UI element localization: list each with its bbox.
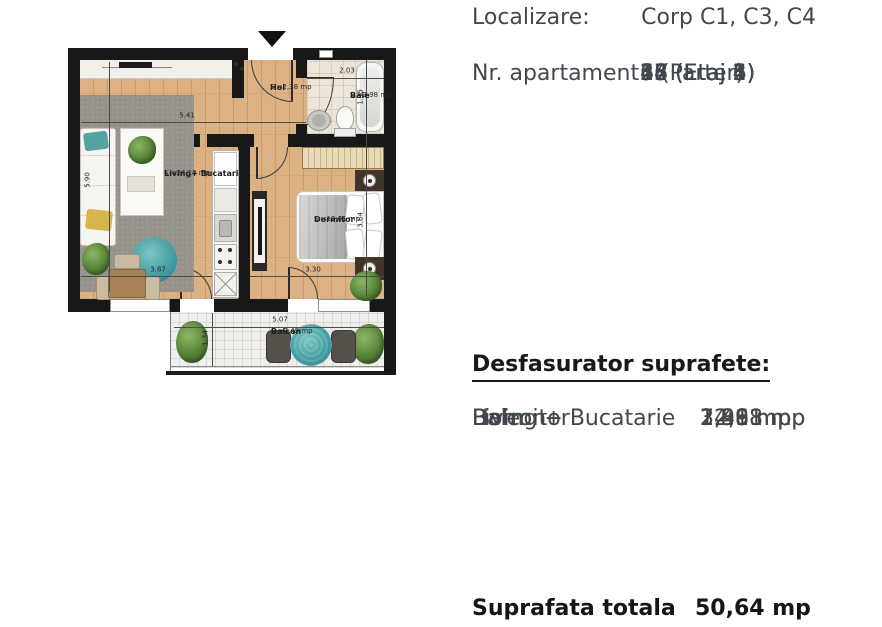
tv-bedroom — [258, 207, 262, 255]
bath-window — [319, 50, 333, 58]
total-label: Suprafata totala — [472, 596, 676, 621]
localizare-label: Localizare: — [472, 5, 590, 30]
wall-bottom-a — [68, 299, 110, 312]
hall-dot-2 — [240, 67, 244, 71]
nr-apartament-label: Nr. apartament: — [472, 61, 647, 86]
wall-bottom-b — [170, 299, 180, 312]
surface-name: Balcon — [472, 402, 546, 435]
burner-4 — [228, 260, 232, 264]
balcony-chair-right — [331, 330, 356, 363]
lamp-dot-top — [368, 179, 372, 183]
tv-console — [80, 60, 232, 79]
bedroom-window — [318, 299, 370, 312]
wall-bottom-c — [214, 299, 288, 312]
apartment-item: 68 (Etaj 6) — [640, 59, 755, 90]
bath-sink-bowl — [312, 114, 326, 127]
floor-plan: 5.41 5.90 3.87 3.30 2.03 1.95 3.64 5.07 … — [0, 0, 440, 627]
wall-top-right — [293, 48, 396, 60]
living-window — [110, 299, 170, 312]
coffee-table-decor — [127, 176, 155, 192]
dim-line-balcony-height — [212, 313, 213, 367]
wall-kitchen-b — [207, 134, 254, 147]
balcony-left-rail — [170, 312, 171, 371]
burner-2 — [228, 248, 232, 252]
kitchen-sink — [219, 220, 232, 237]
apartment-spec-sheet: 5.41 5.90 3.87 3.30 2.03 1.95 3.64 5.07 … — [0, 0, 882, 627]
dim-baie-width: 2.03 — [339, 68, 355, 75]
dim-line-baie-width — [307, 78, 384, 79]
dim-line-dining — [81, 276, 212, 277]
tv-screen — [119, 62, 152, 68]
balcony-inner-rail — [170, 366, 384, 367]
wardrobe — [302, 147, 384, 169]
balcony-outer-rail — [166, 371, 396, 375]
wall-hol-baie-b — [296, 124, 307, 134]
wall-left — [68, 48, 80, 312]
dim-line-living-height — [109, 62, 110, 292]
dining-chair-top — [114, 254, 140, 269]
localizare-value: Corp C1, C3, C4 — [641, 5, 816, 30]
wall-hol-baie-a — [296, 60, 307, 78]
details-panel: Localizare: Corp C1, C3, C4 Nr. apartame… — [440, 0, 882, 627]
coffee-table-plant — [128, 136, 156, 164]
hall-dot-1 — [234, 62, 238, 66]
desfasurator-title: Desfasurator suprafete: — [472, 352, 770, 382]
wall-living-hol — [232, 48, 244, 98]
base-cabinet — [214, 272, 237, 296]
entrance-arrow-icon — [258, 31, 286, 47]
dim-living-width: 5.41 — [179, 113, 195, 120]
balcony-plant-right — [352, 324, 384, 364]
wall-bottom-d — [370, 299, 396, 312]
wall-top-left — [68, 48, 248, 60]
dim-dormitor-width: 3.30 — [305, 267, 321, 274]
toilet-tank — [334, 128, 356, 137]
toilet-bowl — [336, 106, 354, 130]
dim-balcon-width: 5.07 — [272, 317, 288, 324]
burner-3 — [218, 260, 222, 264]
sofa-pillow-teal — [83, 131, 109, 152]
surface-area: 7,49 mp — [700, 402, 791, 435]
dim-line-dormitor — [250, 276, 384, 277]
total-value: 50,64 mp — [695, 596, 811, 621]
dining-table — [108, 269, 146, 298]
living-plant — [82, 243, 110, 275]
dim-line-living-width — [81, 122, 306, 123]
burner-1 — [218, 248, 222, 252]
dim-living-height: 5.90 — [85, 172, 92, 188]
dim-dining-width: 3.87 — [150, 267, 166, 274]
bed-blanket — [299, 195, 347, 259]
dim-balcon-height: 1.34 — [203, 330, 210, 346]
kitchen-cabinet — [214, 188, 237, 212]
dining-chair-right — [145, 276, 160, 300]
